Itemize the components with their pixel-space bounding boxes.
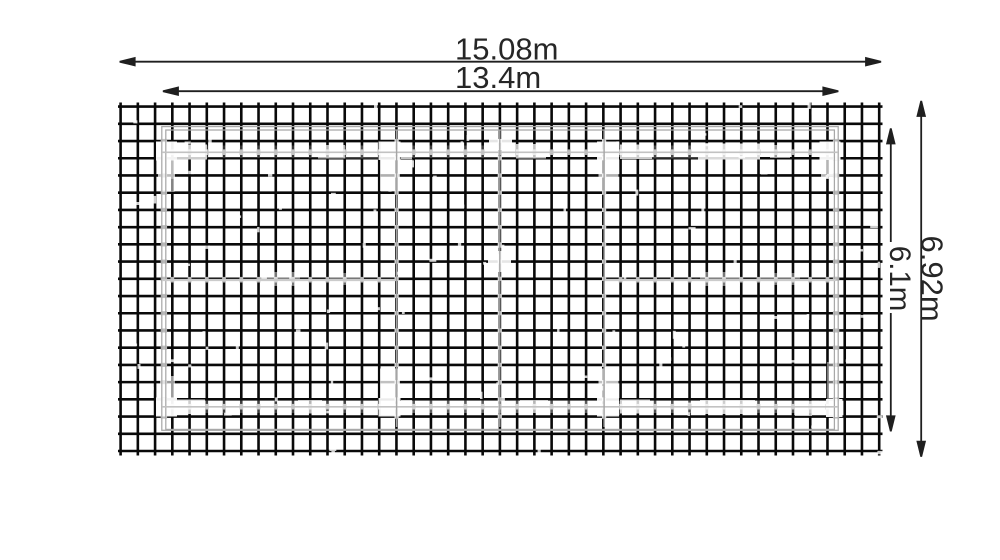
- svg-text:6.92m: 6.92m: [914, 236, 949, 322]
- svg-text:6.1m: 6.1m: [883, 246, 916, 312]
- svg-text:13.4m: 13.4m: [455, 60, 541, 95]
